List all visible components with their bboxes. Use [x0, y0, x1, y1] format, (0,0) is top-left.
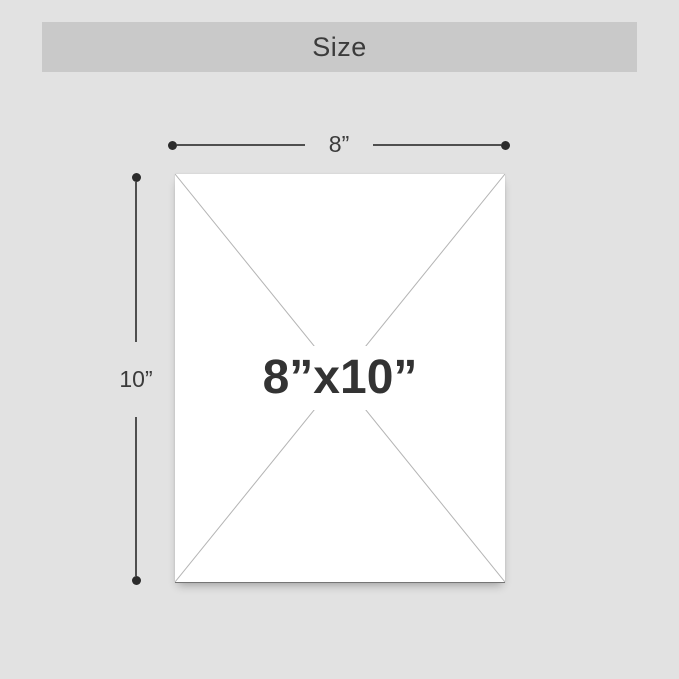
- dimension-line-segment: [135, 182, 137, 342]
- height-dimension: 10”: [131, 173, 141, 585]
- panel-size-label: 8”x10”: [245, 346, 436, 410]
- size-panel: 8”x10”: [175, 174, 505, 582]
- banner-title: Size: [312, 32, 367, 63]
- width-dimension-label: 8”: [305, 133, 373, 156]
- dimension-line-segment: [177, 144, 305, 146]
- width-dimension: 8”: [168, 140, 510, 150]
- dimension-endpoint-dot: [501, 141, 510, 150]
- dimension-endpoint-dot: [132, 173, 141, 182]
- size-banner: Size: [42, 22, 637, 72]
- dimension-line-segment: [135, 417, 137, 577]
- height-dimension-label: 10”: [119, 342, 152, 417]
- size-diagram: Size 8” 10” 8”x10”: [0, 0, 679, 679]
- dimension-endpoint-dot: [168, 141, 177, 150]
- dimension-line-segment: [373, 144, 501, 146]
- dimension-endpoint-dot: [132, 576, 141, 585]
